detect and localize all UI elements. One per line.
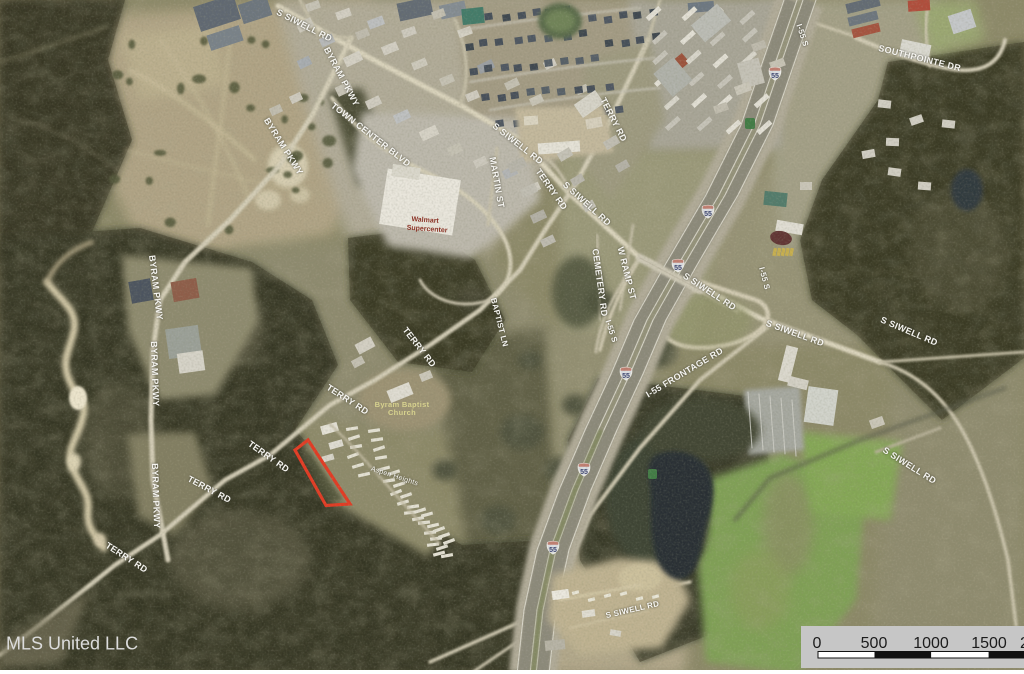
svg-text:1000: 1000 [913,635,949,652]
svg-text:2: 2 [1020,635,1024,652]
svg-text:1500: 1500 [971,635,1007,652]
svg-text:500: 500 [861,635,888,652]
svg-text:MLS United LLC: MLS United LLC [6,634,138,654]
svg-text:0: 0 [813,635,822,652]
